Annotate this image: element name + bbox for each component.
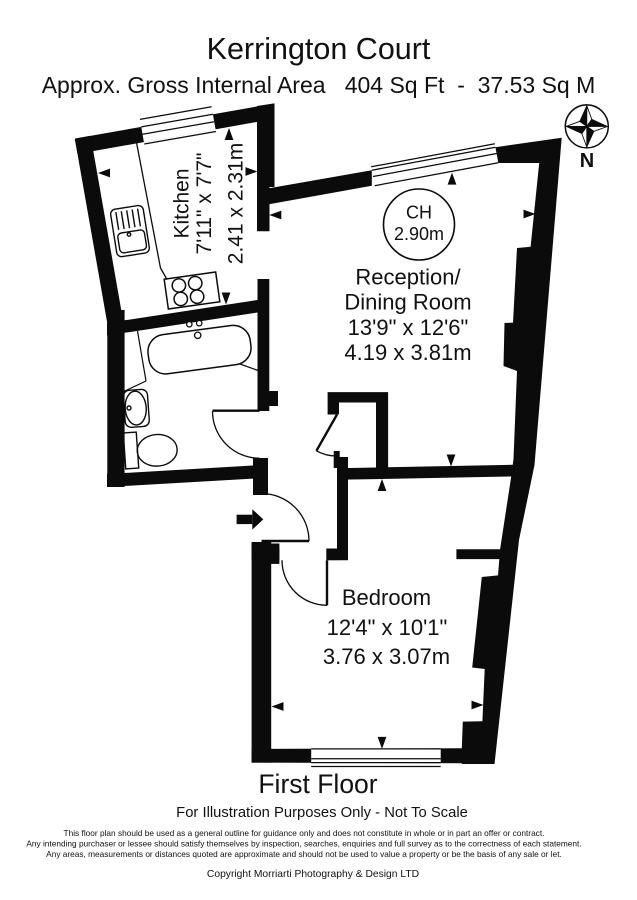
svg-text:First Floor: First Floor — [258, 769, 377, 799]
svg-text:Approx. Gross Internal Area: Approx. Gross Internal Area 404 Sq Ft - … — [42, 72, 596, 98]
svg-text:2.41 x 2.31m: 2.41 x 2.31m — [225, 143, 248, 264]
svg-text:Any intending purchaser or les: Any intending purchaser or lessee should… — [26, 839, 581, 849]
svg-text:13'9" x 12'6": 13'9" x 12'6" — [348, 315, 469, 340]
svg-text:CH: CH — [406, 202, 432, 222]
svg-text:This floor plan should be used: This floor plan should be used as a gene… — [64, 828, 545, 838]
svg-text:Kerrington Court: Kerrington Court — [207, 32, 431, 66]
svg-text:Reception/: Reception/ — [355, 265, 461, 290]
svg-text:7'11" x 7'7": 7'11" x 7'7" — [193, 153, 216, 255]
svg-text:Bedroom: Bedroom — [342, 585, 431, 610]
svg-text:N: N — [580, 150, 594, 172]
svg-text:3.76 x 3.07m: 3.76 x 3.07m — [323, 644, 450, 669]
svg-text:4.19 x 3.81m: 4.19 x 3.81m — [344, 340, 471, 365]
svg-text:Copyright Morriarti Photograph: Copyright Morriarti Photography & Design… — [207, 869, 419, 880]
svg-text:Kitchen: Kitchen — [171, 168, 194, 238]
svg-text:12'4" x 10'1": 12'4" x 10'1" — [327, 615, 448, 640]
svg-text:Dining Room: Dining Room — [344, 290, 471, 315]
svg-text:For Illustration Purposes Only: For Illustration Purposes Only - Not To … — [176, 805, 468, 821]
svg-text:2.90m: 2.90m — [394, 224, 444, 244]
svg-text:Any areas, measurements or dis: Any areas, measurements or distances quo… — [46, 849, 562, 859]
